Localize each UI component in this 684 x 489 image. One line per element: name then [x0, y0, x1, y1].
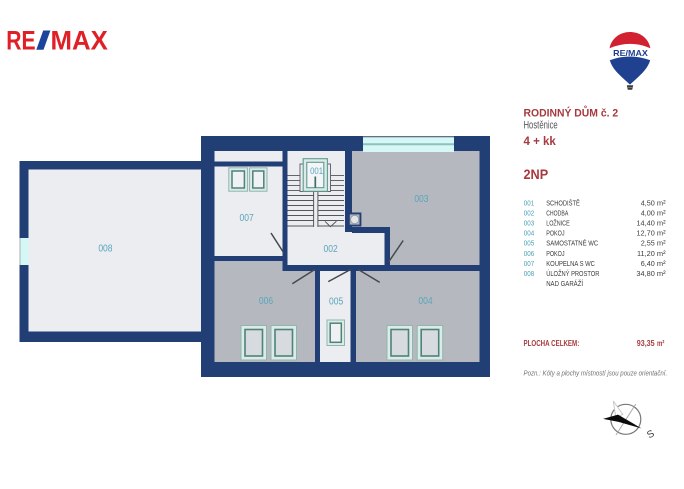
svg-text:m²: m²: [657, 239, 666, 248]
svg-text:4,00: 4,00: [641, 208, 655, 217]
svg-text:2,55: 2,55: [641, 238, 655, 247]
svg-text:RE/MAX: RE/MAX: [613, 48, 648, 58]
svg-text:m²: m²: [657, 218, 666, 227]
svg-text:002: 002: [324, 243, 338, 254]
svg-text:005: 005: [524, 240, 534, 248]
svg-text:m²: m²: [657, 338, 665, 348]
svg-text:SCHODIŠTĚ: SCHODIŠTĚ: [546, 197, 580, 207]
svg-text:001: 001: [310, 165, 323, 176]
svg-text:Hostěnice: Hostěnice: [524, 119, 558, 132]
svg-text:RODINNÝ DŮM č. 2: RODINNÝ DŮM č. 2: [524, 105, 619, 119]
svg-text:LOŽNICE: LOŽNICE: [546, 217, 570, 227]
svg-text:003: 003: [524, 220, 534, 228]
svg-text:001: 001: [524, 200, 534, 208]
svg-text:CHODBA: CHODBA: [546, 210, 569, 218]
svg-text:MAX: MAX: [51, 26, 109, 56]
svg-text:KOUPELNA S WC: KOUPELNA S WC: [546, 260, 595, 268]
svg-text:007: 007: [240, 213, 254, 224]
svg-text:PLOCHA CELKEM:: PLOCHA CELKEM:: [524, 338, 580, 348]
svg-text:Pozn.: Kóty a plochy místností: Pozn.: Kóty a plochy místností jsou pouz…: [524, 370, 668, 378]
svg-text:4,50: 4,50: [641, 198, 655, 207]
svg-text:93,35: 93,35: [637, 338, 655, 348]
svg-text:6,40: 6,40: [641, 259, 655, 268]
svg-text:m²: m²: [657, 208, 666, 217]
svg-text:m²: m²: [657, 259, 666, 268]
svg-text:m²: m²: [657, 228, 666, 237]
svg-text:4 + kk: 4 + kk: [524, 135, 557, 148]
svg-text:14,40: 14,40: [636, 218, 654, 227]
svg-text:006: 006: [524, 250, 534, 258]
svg-text:POKOJ: POKOJ: [546, 230, 564, 238]
svg-text:ÚLOŽNÝ PROSTOR: ÚLOŽNÝ PROSTOR: [546, 268, 599, 278]
svg-text:008: 008: [524, 271, 534, 279]
svg-text:POKOJ: POKOJ: [546, 250, 564, 258]
svg-text:008: 008: [98, 243, 112, 254]
svg-text:34,80: 34,80: [636, 269, 654, 278]
svg-text:007: 007: [524, 260, 534, 268]
svg-text:SAMOSTATNÉ WC: SAMOSTATNÉ WC: [546, 238, 598, 248]
svg-text:004: 004: [418, 295, 432, 306]
svg-text:NAD GARÁŽÍ: NAD GARÁŽÍ: [546, 278, 583, 288]
svg-text:002: 002: [524, 210, 534, 218]
svg-text:12,70: 12,70: [636, 228, 654, 237]
svg-text:006: 006: [259, 295, 273, 306]
svg-text:005: 005: [329, 296, 343, 307]
svg-text:m²: m²: [657, 249, 666, 258]
svg-text:RE: RE: [6, 26, 35, 56]
svg-text:m²: m²: [657, 269, 666, 278]
svg-text:m²: m²: [657, 198, 666, 207]
svg-text:2NP: 2NP: [524, 167, 549, 183]
svg-text:004: 004: [524, 230, 534, 238]
svg-text:003: 003: [414, 193, 428, 204]
svg-text:11,20: 11,20: [637, 249, 655, 258]
